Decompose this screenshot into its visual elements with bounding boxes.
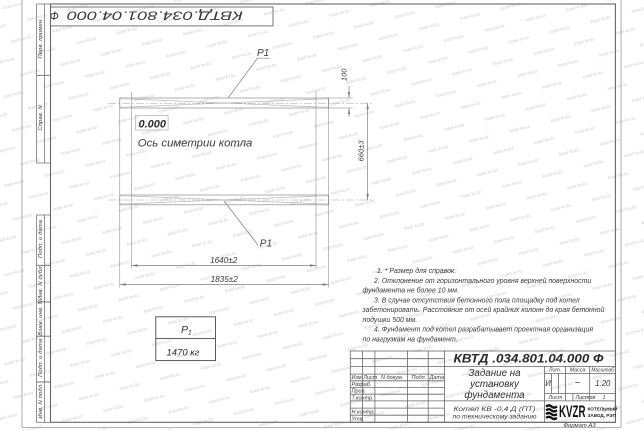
- svg-text:1:20: 1:20: [595, 379, 611, 388]
- svg-text:1: 1: [603, 395, 606, 401]
- svg-text:Формат А3: Формат А3: [563, 423, 596, 429]
- svg-text:3. В случае отсутствия бетонно: 3. В случае отсутствия бетонного пола пл…: [374, 296, 580, 304]
- svg-text:Котел КВ -0,4 Д (ПТ): Котел КВ -0,4 Д (ПТ): [454, 406, 536, 413]
- svg-text:установку: установку: [469, 379, 520, 390]
- svg-text:P1: P1: [260, 239, 272, 250]
- svg-text:Справ. N: Справ. N: [38, 105, 44, 131]
- svg-text:Утв.: Утв.: [351, 417, 365, 423]
- svg-text:Разраб.: Разраб.: [352, 382, 372, 388]
- svg-text:по техническому заданию: по техническому заданию: [453, 414, 537, 421]
- svg-text:по нагрузкам на фундамент.: по нагрузкам на фундамент.: [363, 335, 458, 343]
- svg-text:Т.контр.: Т.контр.: [352, 395, 374, 401]
- svg-text:Пров.: Пров.: [352, 389, 367, 395]
- svg-text:И: И: [545, 379, 551, 388]
- svg-text:Масса: Масса: [570, 368, 586, 374]
- svg-text:Лист: Лист: [548, 395, 563, 401]
- svg-text:1640±2: 1640±2: [210, 256, 238, 265]
- svg-text:КВТД .034.801.04.000 Ф: КВТД .034.801.04.000 Ф: [454, 352, 604, 366]
- svg-text:забетонировать. Расстояние от: забетонировать. Расстояние от осей крайн…: [362, 306, 605, 314]
- svg-text:ЗАВОД, РЭП: ЗАВОД, РЭП: [588, 413, 616, 418]
- svg-text:фундамента: фундамента: [464, 390, 525, 401]
- svg-text:0.000: 0.000: [139, 118, 167, 130]
- svg-text:KVZR: KVZR: [559, 403, 586, 421]
- svg-text:Лит.: Лит.: [548, 368, 562, 374]
- svg-text:Задание на: Задание на: [468, 368, 521, 379]
- svg-text:1470 кг: 1470 кг: [167, 347, 200, 358]
- svg-text:Подп. и дата: Подп. и дата: [38, 219, 44, 258]
- svg-text:Листов: Листов: [575, 395, 596, 401]
- svg-text:–: –: [574, 378, 580, 387]
- svg-text:фундамента не более 10 мм.: фундамента не более 10 мм.: [363, 287, 459, 295]
- svg-text:N докум.: N докум.: [381, 375, 403, 381]
- svg-text:Подп. и дата: Подп. и дата: [38, 338, 44, 377]
- svg-text:P1: P1: [257, 48, 269, 59]
- svg-text:КВТД.034.801.04.000: КВТД.034.801.04.000: [66, 9, 243, 21]
- svg-text:1. * Размер для справок.: 1. * Размер для справок.: [377, 267, 456, 275]
- svg-text:1835±2: 1835±2: [211, 275, 239, 284]
- svg-text:подушки 500 мм.: подушки 500 мм.: [363, 316, 418, 324]
- svg-text:Ось симетрии котла: Ось симетрии котла: [138, 138, 252, 150]
- svg-text:Н.контр.: Н.контр.: [352, 410, 375, 416]
- svg-text:Инв. N подл.: Инв. N подл.: [38, 383, 44, 419]
- svg-text:Перв. примен.: Перв. примен.: [38, 18, 44, 58]
- svg-text:100: 100: [339, 68, 348, 81]
- svg-text:Дата: Дата: [429, 375, 445, 381]
- svg-text:660±3: 660±3: [356, 140, 365, 162]
- svg-text:Ф: Ф: [50, 9, 59, 21]
- svg-text:Инв. N дубл.: Инв. N дубл.: [38, 265, 44, 300]
- svg-text:Масштаб: Масштаб: [591, 368, 614, 374]
- svg-text:Подп.: Подп.: [412, 375, 427, 381]
- svg-text:4. Фундамент под котел разраба: 4. Фундамент под котел разрабатывает про…: [374, 326, 593, 334]
- svg-text:2. Отклонение от горизонтально: 2. Отклонение от горизонтального уровня …: [373, 277, 591, 285]
- svg-text:КОТЕЛЬНЫЙ: КОТЕЛЬНЫЙ: [588, 405, 618, 412]
- svg-text:Изм.Лист: Изм.Лист: [352, 375, 378, 381]
- svg-text:Взам. инв. N: Взам. инв. N: [38, 299, 44, 335]
